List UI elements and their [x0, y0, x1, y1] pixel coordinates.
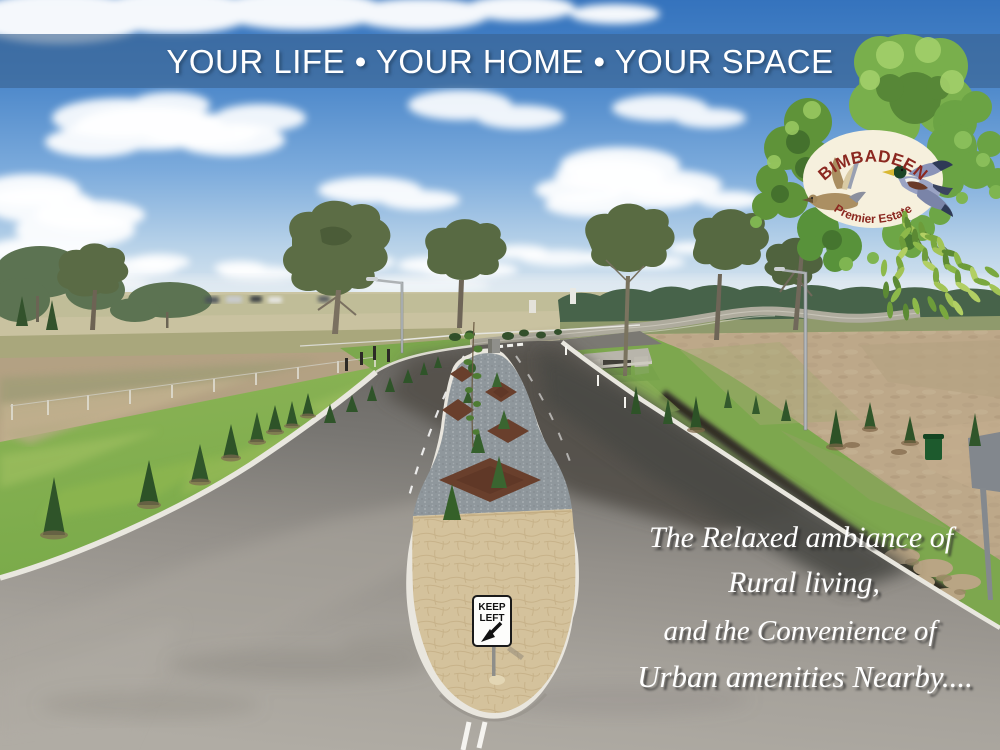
svg-text:and the Convenience of: and the Convenience of: [664, 615, 941, 647]
svg-text:YOUR LIFE • YOUR HOME • YOUR S: YOUR LIFE • YOUR HOME • YOUR SPACE: [166, 43, 833, 80]
svg-text:The Relaxed ambiance of: The Relaxed ambiance of: [649, 521, 957, 554]
svg-text:Rural living,: Rural living,: [727, 566, 880, 599]
svg-text:LEFT: LEFT: [480, 613, 505, 624]
svg-text:KEEP: KEEP: [478, 602, 506, 613]
svg-text:Urban amenities Nearby....: Urban amenities Nearby....: [637, 659, 973, 694]
